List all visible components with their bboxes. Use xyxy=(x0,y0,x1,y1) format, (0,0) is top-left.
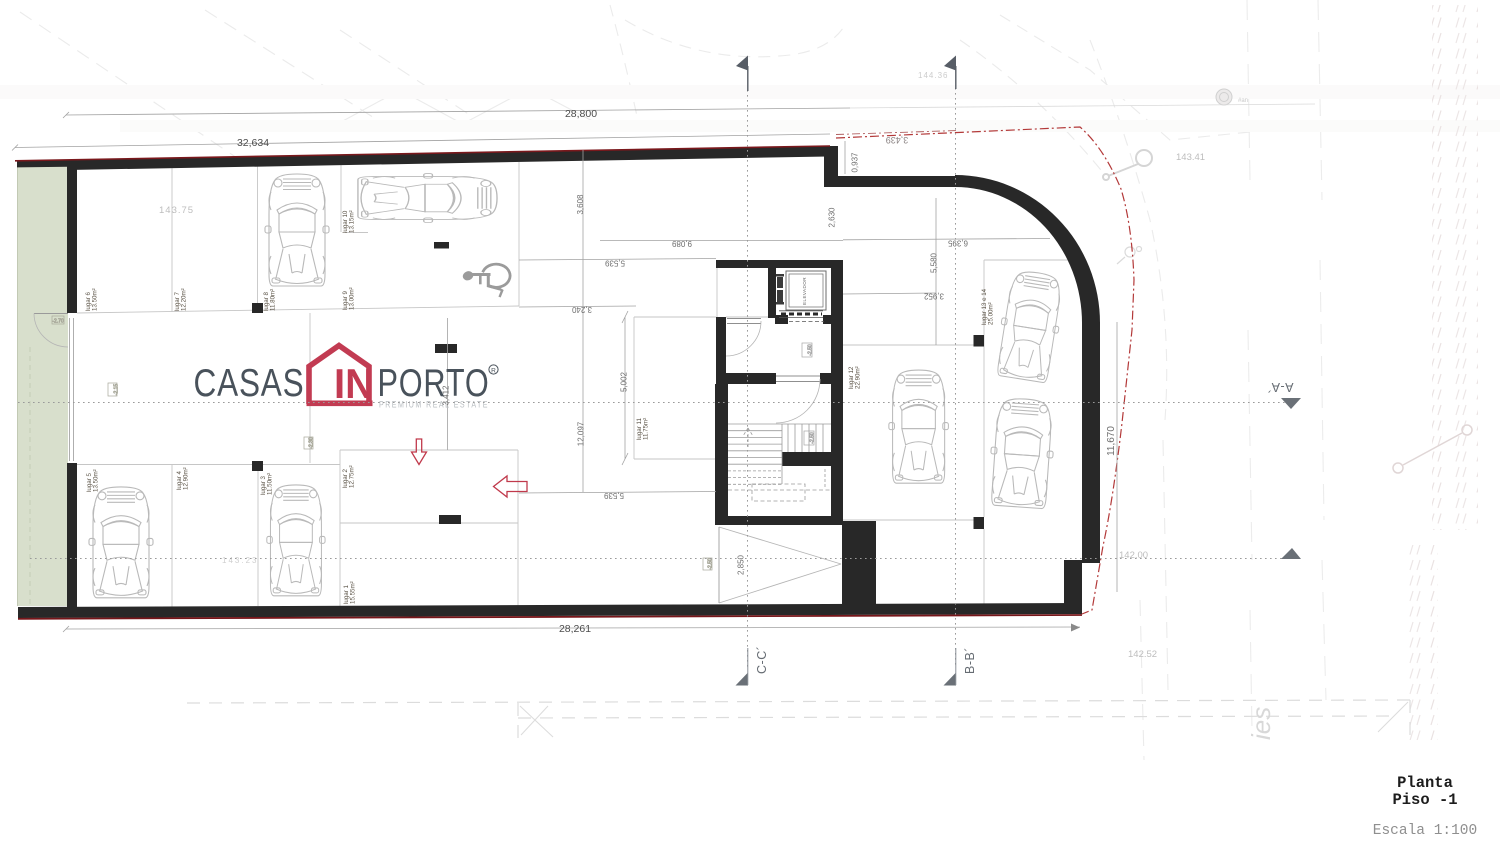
svg-text:11.75m²: 11.75m² xyxy=(643,418,650,440)
svg-text:3,608: 3,608 xyxy=(576,194,585,215)
svg-text:142.52: 142.52 xyxy=(1128,649,1157,660)
svg-text:C-C´: C-C´ xyxy=(755,646,769,674)
svg-text:3,439: 3,439 xyxy=(886,135,909,145)
svg-text:12,097: 12,097 xyxy=(577,421,586,446)
svg-text:11.50m²: 11.50m² xyxy=(267,473,274,495)
svg-text:0,937: 0,937 xyxy=(851,152,860,173)
svg-text:R: R xyxy=(491,368,496,375)
svg-text:144.36: 144.36 xyxy=(918,71,948,80)
svg-text:13.15m²: 13.15m² xyxy=(349,210,356,233)
svg-text:-2.70: -2.70 xyxy=(52,319,64,325)
svg-text:Escala 1:100: Escala 1:100 xyxy=(1373,823,1477,839)
svg-text:5,002: 5,002 xyxy=(620,371,629,392)
svg-text:-2.50: -2.50 xyxy=(808,344,814,356)
svg-text:12.90m²: 12.90m² xyxy=(183,467,190,490)
svg-text:ELEVADOR: ELEVADOR xyxy=(802,277,807,305)
svg-text:28,800: 28,800 xyxy=(565,108,597,120)
svg-text:15.55m²: 15.55m² xyxy=(350,581,357,604)
svg-text:3,240: 3,240 xyxy=(571,305,592,314)
svg-text:25.00m²: 25.00m² xyxy=(988,302,995,325)
svg-text:143.41: 143.41 xyxy=(1176,152,1205,163)
svg-text:Planta: Planta xyxy=(1397,774,1453,792)
svg-text:13.50m²: 13.50m² xyxy=(93,469,100,492)
svg-text:143.75: 143.75 xyxy=(159,205,194,216)
svg-text:PREMIUM REAL ESTATE: PREMIUM REAL ESTATE xyxy=(379,400,489,411)
svg-text:11,670: 11,670 xyxy=(1106,426,1117,456)
svg-text:-2.30: -2.30 xyxy=(309,437,315,449)
svg-text:CASAS: CASAS xyxy=(194,362,305,405)
svg-text:12.75m²: 12.75m² xyxy=(349,465,356,488)
svg-text:5,539: 5,539 xyxy=(603,491,624,500)
svg-text:5,539: 5,539 xyxy=(604,259,625,268)
svg-text:13.50m²: 13.50m² xyxy=(92,288,99,311)
svg-text:28,261: 28,261 xyxy=(559,623,591,635)
svg-text:11.80m²: 11.80m² xyxy=(270,289,277,311)
svg-text:Piso -1: Piso -1 xyxy=(1392,791,1457,809)
svg-text:6,395: 6,395 xyxy=(947,239,968,248)
svg-text:#an: #an xyxy=(1238,98,1248,104)
svg-text:3,952: 3,952 xyxy=(923,292,944,301)
svg-text:-2.50: -2.50 xyxy=(708,558,714,570)
svg-text:-2.15: -2.15 xyxy=(114,384,120,396)
svg-text:5,580: 5,580 xyxy=(930,252,939,273)
svg-text:142.00: 142.00 xyxy=(1119,550,1148,561)
svg-text:143.23: 143.23 xyxy=(222,556,258,565)
svg-text:2,630: 2,630 xyxy=(828,207,837,228)
svg-text:IN: IN xyxy=(334,360,374,407)
svg-text:-2.50: -2.50 xyxy=(810,432,816,444)
svg-text:13.00m²: 13.00m² xyxy=(349,287,356,310)
svg-text:32,634: 32,634 xyxy=(237,137,269,149)
svg-text:12.20m²: 12.20m² xyxy=(181,288,188,311)
svg-text:ies: ies xyxy=(1246,707,1276,740)
svg-text:A-A´: A-A´ xyxy=(1267,380,1294,394)
svg-text:2,850: 2,850 xyxy=(737,554,746,575)
svg-text:9,089: 9,089 xyxy=(671,239,692,248)
svg-text:B-B´: B-B´ xyxy=(963,647,977,674)
svg-text:22.90m²: 22.90m² xyxy=(855,366,862,389)
